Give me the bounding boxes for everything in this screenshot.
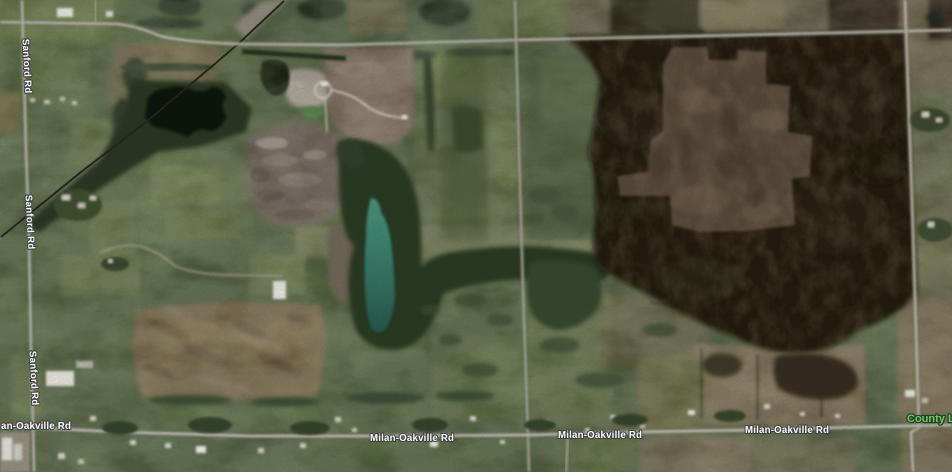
svg-text:County Li: County Li (907, 413, 952, 425)
svg-text:an-Oakville Rd: an-Oakville Rd (1, 421, 71, 432)
svg-text:Milan-Oakville Rd: Milan-Oakville Rd (558, 430, 642, 441)
svg-text:Milan-Oakville Rd: Milan-Oakville Rd (370, 433, 454, 444)
svg-text:Milan-Oakville Rd: Milan-Oakville Rd (745, 425, 829, 436)
